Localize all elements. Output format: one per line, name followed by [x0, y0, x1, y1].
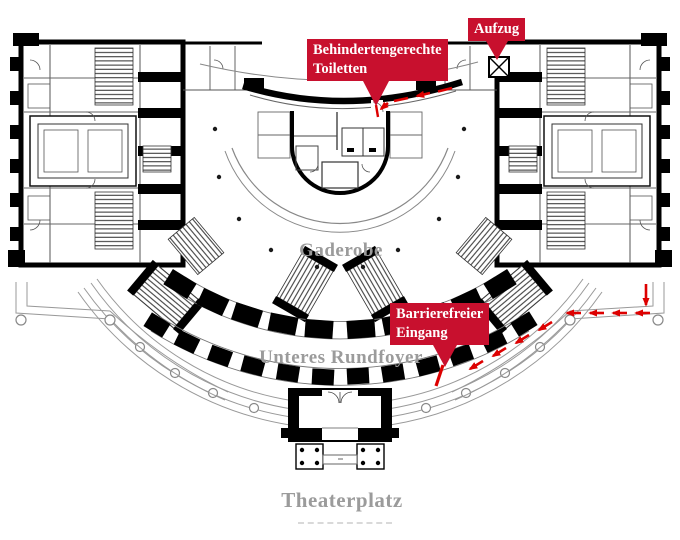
callout-accessible-entrance: Barrierefreier Eingang: [390, 303, 489, 345]
callout-pointer: [486, 41, 508, 60]
callout-text-line: Eingang: [396, 324, 483, 343]
callout-text-line: Barrierefreier: [396, 305, 483, 324]
floor-plan-drawing: [0, 0, 680, 540]
callout-pointer: [363, 81, 389, 106]
callout-text-line: Aufzug: [474, 20, 519, 39]
callout-text-line: Toiletten: [313, 60, 442, 79]
elevator-icon: [489, 57, 509, 77]
label-theaterplatz: Theaterplatz: [281, 488, 402, 513]
callout-text-line: Behindertengerechte: [313, 41, 442, 60]
label-garderobe: Gaderobe: [299, 240, 383, 262]
callout-accessible-toilets: Behindertengerechte Toiletten: [307, 39, 448, 81]
accessible-toilets-block: [292, 100, 388, 193]
portico: [281, 388, 399, 469]
label-unteres-rundfoyer: Unteres Rundfoyer: [259, 347, 423, 369]
callout-elevator: Aufzug: [468, 18, 525, 41]
bottom-dashed-line: [298, 522, 392, 524]
callout-pointer: [433, 345, 457, 367]
theater-floor-plan: Behindertengerechte Toiletten Aufzug Bar…: [0, 0, 680, 540]
